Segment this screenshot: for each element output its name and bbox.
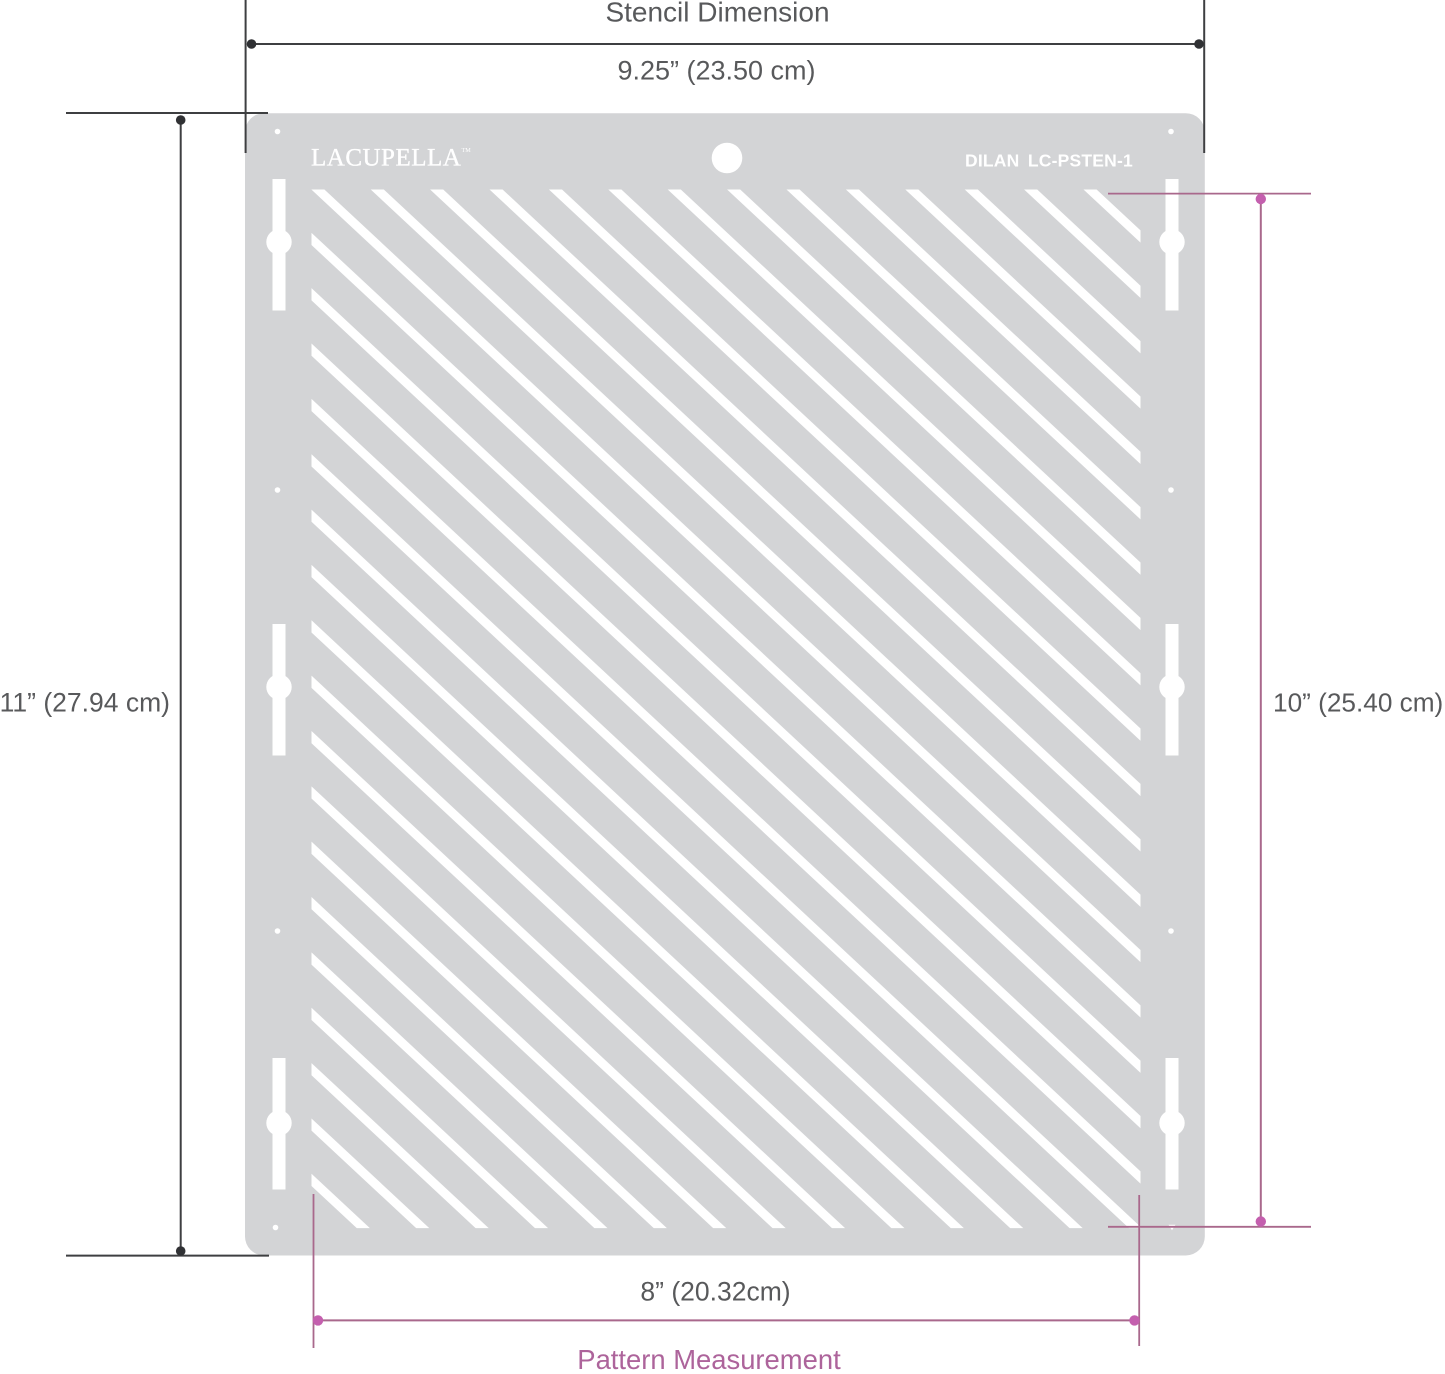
svg-text:Pattern Measurement: Pattern Measurement [577, 1344, 841, 1374]
svg-text:11” (27.94 cm): 11” (27.94 cm) [0, 688, 170, 718]
svg-text:Stencil Dimension: Stencil Dimension [605, 0, 829, 28]
svg-text:TM: TM [462, 147, 472, 154]
svg-text:9.25” (23.50 cm): 9.25” (23.50 cm) [617, 56, 815, 86]
svg-text:LACUPELLA: LACUPELLA [311, 145, 461, 172]
svg-text:10” (25.40 cm): 10” (25.40 cm) [1273, 688, 1443, 718]
svg-text:DILAN LC-PSTEN-1: DILAN LC-PSTEN-1 [965, 151, 1133, 171]
svg-text:8” (20.32cm): 8” (20.32cm) [640, 1277, 790, 1307]
